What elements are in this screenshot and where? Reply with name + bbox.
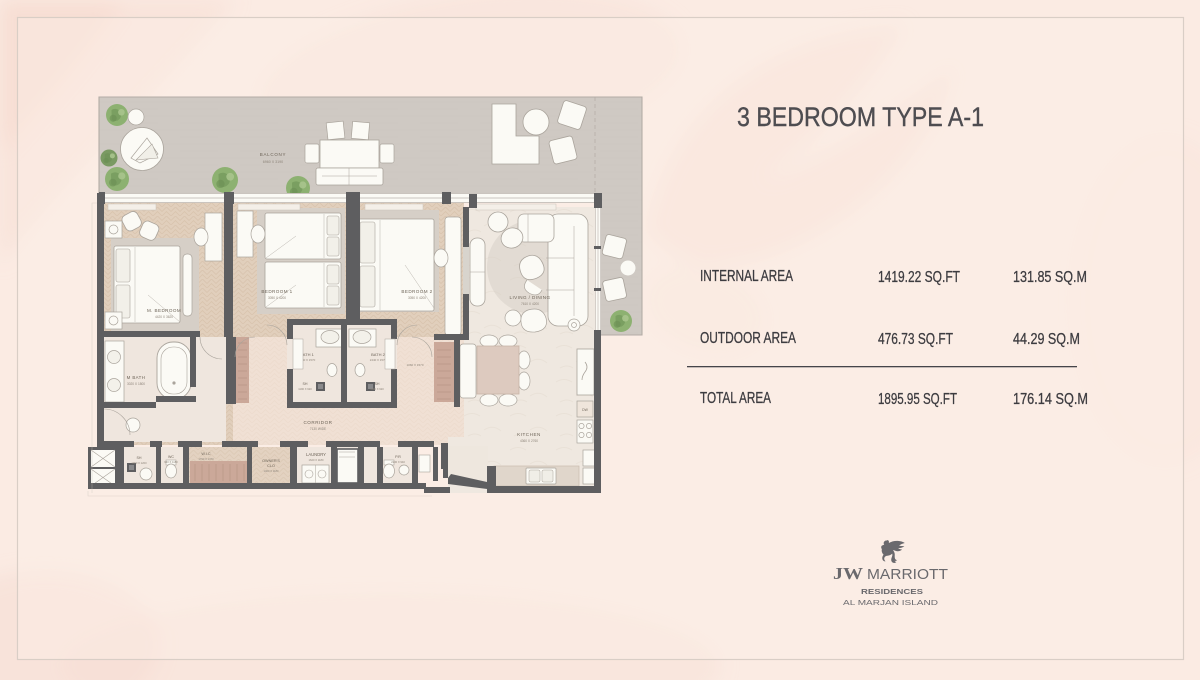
svg-text:476.73 SQ.FT: 476.73 SQ.FT	[878, 331, 953, 348]
svg-text:KITCHEN: KITCHEN	[517, 432, 541, 437]
svg-text:SH: SH	[303, 382, 308, 386]
svg-text:4420 X 3620: 4420 X 3620	[155, 315, 173, 319]
svg-text:JW: JW	[833, 564, 864, 583]
svg-text:TOTAL AREA: TOTAL AREA	[700, 390, 771, 407]
svg-text:LAUNDRY: LAUNDRY	[306, 452, 326, 457]
svg-text:131.85 SQ.M: 131.85 SQ.M	[1013, 269, 1087, 286]
svg-text:LIVING / DINING: LIVING / DINING	[510, 295, 551, 300]
svg-text:DW: DW	[582, 408, 588, 412]
svg-text:4360 X 2760: 4360 X 2760	[520, 439, 538, 443]
svg-text:1190 X 920: 1190 X 920	[298, 387, 312, 391]
svg-text:INTERNAL AREA: INTERNAL AREA	[700, 268, 793, 285]
svg-text:1790 X 1370: 1790 X 1370	[198, 457, 214, 461]
svg-text:1620 X 1180: 1620 X 1180	[308, 458, 324, 462]
svg-text:3050 X 4200: 3050 X 4200	[408, 296, 426, 300]
svg-text:BEDROOM 2: BEDROOM 2	[401, 289, 432, 294]
svg-text:6960 X 3190: 6960 X 3190	[263, 160, 283, 164]
svg-text:RESIDENCES: RESIDENCES	[861, 587, 923, 596]
svg-text:MARRIOTT: MARRIOTT	[867, 566, 948, 583]
svg-text:2440 X 1570: 2440 X 1570	[370, 358, 387, 362]
svg-text:940 X 1180: 940 X 1180	[164, 460, 178, 464]
svg-text:176.14 SQ.M: 176.14 SQ.M	[1013, 391, 1088, 408]
svg-text:M BATH: M BATH	[127, 375, 146, 380]
svg-text:1400 X 1180: 1400 X 1180	[263, 469, 279, 473]
svg-text:44.29 SQ.M: 44.29 SQ.M	[1013, 331, 1080, 348]
svg-text:P.R: P.R	[395, 455, 401, 459]
svg-text:1060 X 1570: 1060 X 1570	[406, 363, 423, 367]
svg-text:SH: SH	[375, 382, 380, 386]
svg-text:AL MARJAN ISLAND: AL MARJAN ISLAND	[843, 598, 939, 607]
svg-text:3050 X 4200: 3050 X 4200	[268, 296, 286, 300]
svg-text:7610 X 4200: 7610 X 4200	[521, 302, 539, 306]
svg-text:OUTDOOR AREA: OUTDOOR AREA	[700, 330, 796, 347]
svg-text:3020 X 1800: 3020 X 1800	[127, 382, 145, 386]
svg-text:OWNER'S: OWNER'S	[262, 459, 280, 463]
svg-text:BALCONY: BALCONY	[260, 152, 286, 157]
svg-text:7130 WIDE: 7130 WIDE	[310, 427, 326, 431]
svg-text:SH: SH	[137, 456, 142, 460]
svg-text:W.I.C: W.I.C	[201, 452, 211, 456]
svg-text:1190 X 920: 1190 X 920	[370, 387, 384, 391]
svg-text:1000 X 1200: 1000 X 1200	[131, 461, 147, 465]
svg-text:WC: WC	[168, 455, 174, 459]
svg-text:M. BEDROOM: M. BEDROOM	[147, 308, 181, 313]
svg-text:CLO: CLO	[267, 464, 275, 468]
svg-text:3 BEDROOM TYPE A-1: 3 BEDROOM TYPE A-1	[737, 102, 984, 132]
svg-text:BEDROOM 1: BEDROOM 1	[261, 289, 292, 294]
svg-text:BATH 2: BATH 2	[371, 352, 385, 357]
svg-text:1419.22 SQ.FT: 1419.22 SQ.FT	[878, 269, 960, 286]
svg-text:CORRIDOR: CORRIDOR	[303, 420, 332, 425]
svg-text:2230 X 940: 2230 X 940	[391, 460, 405, 464]
svg-text:1895.95 SQ.FT: 1895.95 SQ.FT	[878, 391, 957, 408]
